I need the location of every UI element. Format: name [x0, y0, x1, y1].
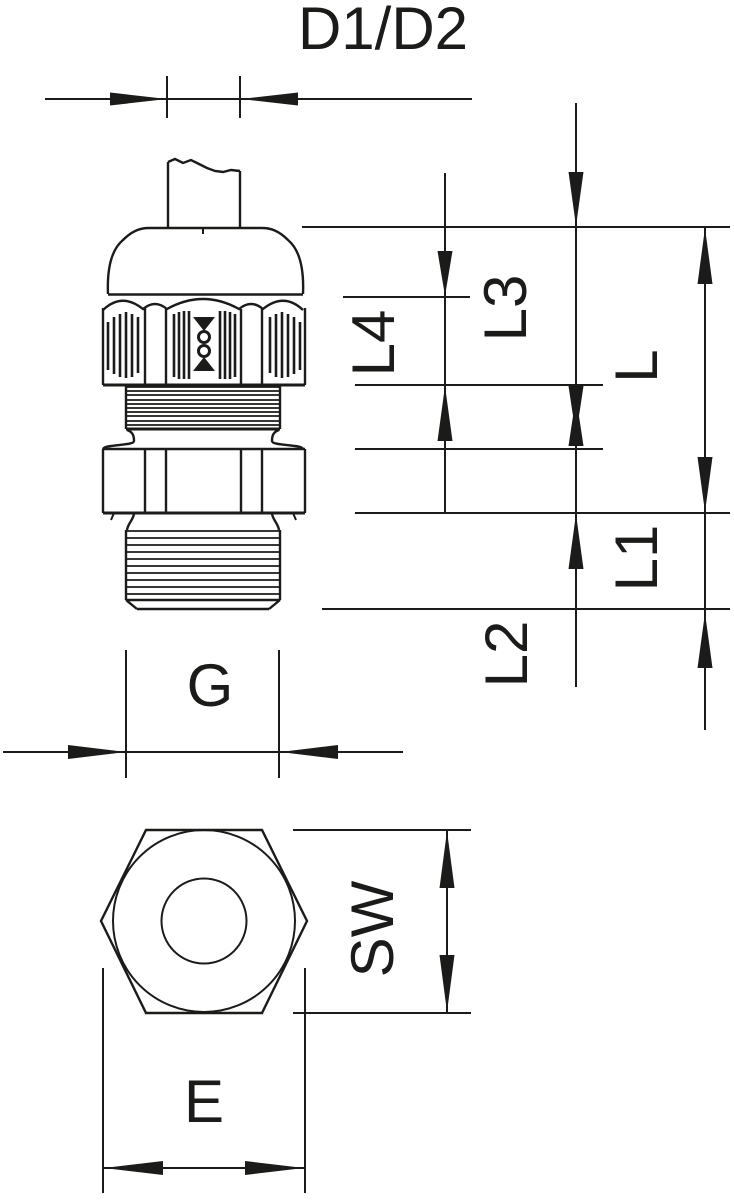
d1-d2-ticks [167, 76, 240, 118]
d1-d2-arrow-left-icon [241, 93, 298, 106]
dim-label-d1-d2: D1/D2 [298, 0, 468, 62]
dimension-d1-d2: D1/D2 [45, 0, 472, 118]
dimension-l3: L3 L2 [472, 103, 584, 687]
dim-label-l: L [603, 349, 670, 382]
upper-neck [103, 430, 303, 449]
dimension-g: G [3, 650, 403, 778]
dim-label-l1: L1 [603, 525, 670, 592]
dimension-l4: L4 [340, 173, 453, 513]
manufacturer-emblem-icon [193, 317, 215, 371]
connection-thread-lines [126, 531, 280, 594]
dimension-sw: SW [293, 830, 471, 1013]
lock-nut-edges [103, 449, 305, 513]
lower-neck [127, 513, 279, 530]
dim-label-sw: SW [339, 880, 406, 977]
cable-entry-hole [162, 879, 247, 964]
across-flats-circle [113, 830, 295, 1012]
hex-hatch-left-face [108, 312, 138, 378]
upper-hex-nut [103, 299, 305, 385]
double-arrow-icon [569, 386, 584, 446]
hex-hatch-right-face [270, 312, 300, 378]
dim-label-g: G [187, 652, 234, 719]
connection-thread-chamfer [126, 600, 280, 609]
d1-d2-arrow-right-icon [110, 93, 167, 106]
technical-drawing-svg: D1/D2 L4 L3 L2 [0, 0, 734, 1200]
hex-hatch-middle-right [220, 311, 235, 379]
dim-label-l4: L4 [340, 310, 407, 377]
sealing-cap [108, 228, 303, 295]
dim-label-l2: L2 [473, 621, 540, 688]
cable-break-line [168, 159, 240, 172]
dimension-e: E [103, 968, 305, 1193]
hex-chamfer-arcs [103, 299, 303, 310]
connection-thread [126, 530, 280, 609]
cap-outline [108, 228, 303, 294]
lock-nut [103, 449, 305, 520]
dim-label-l3: L3 [472, 275, 539, 342]
cable-stub [168, 159, 240, 228]
upper-thread-lines [126, 387, 280, 425]
lock-nut-dividers [145, 449, 262, 513]
hex-hatch-middle-left [174, 311, 189, 379]
dimension-l-l1: L L1 [603, 227, 713, 730]
side-view-dimensions: D1/D2 L4 L3 L2 [3, 0, 730, 778]
connection-thread-edges [126, 530, 280, 600]
bottom-view: SW E [101, 830, 471, 1193]
dim-label-e: E [184, 1068, 224, 1135]
hex-outline [101, 830, 307, 1013]
side-view [103, 159, 305, 609]
upper-thread [126, 386, 280, 429]
cable-gland-dimension-drawing: D1/D2 L4 L3 L2 [0, 0, 734, 1200]
